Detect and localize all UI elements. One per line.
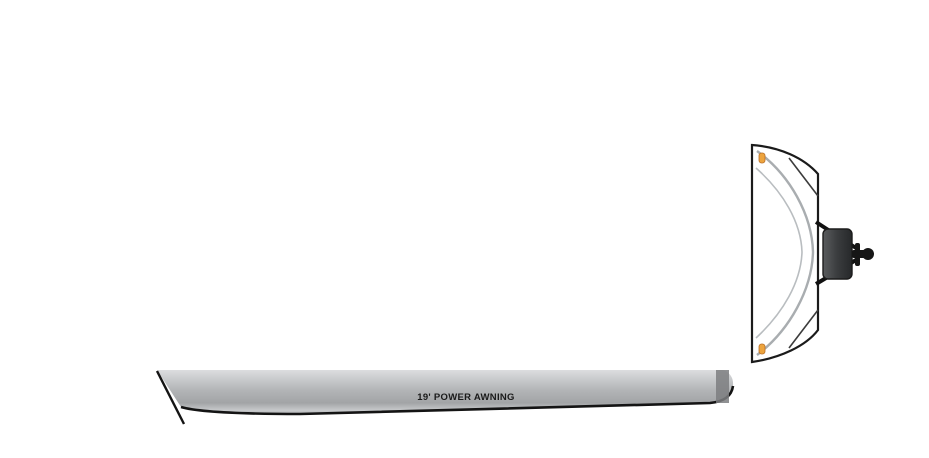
svg-text:19' POWER AWNING: 19' POWER AWNING <box>417 392 515 403</box>
